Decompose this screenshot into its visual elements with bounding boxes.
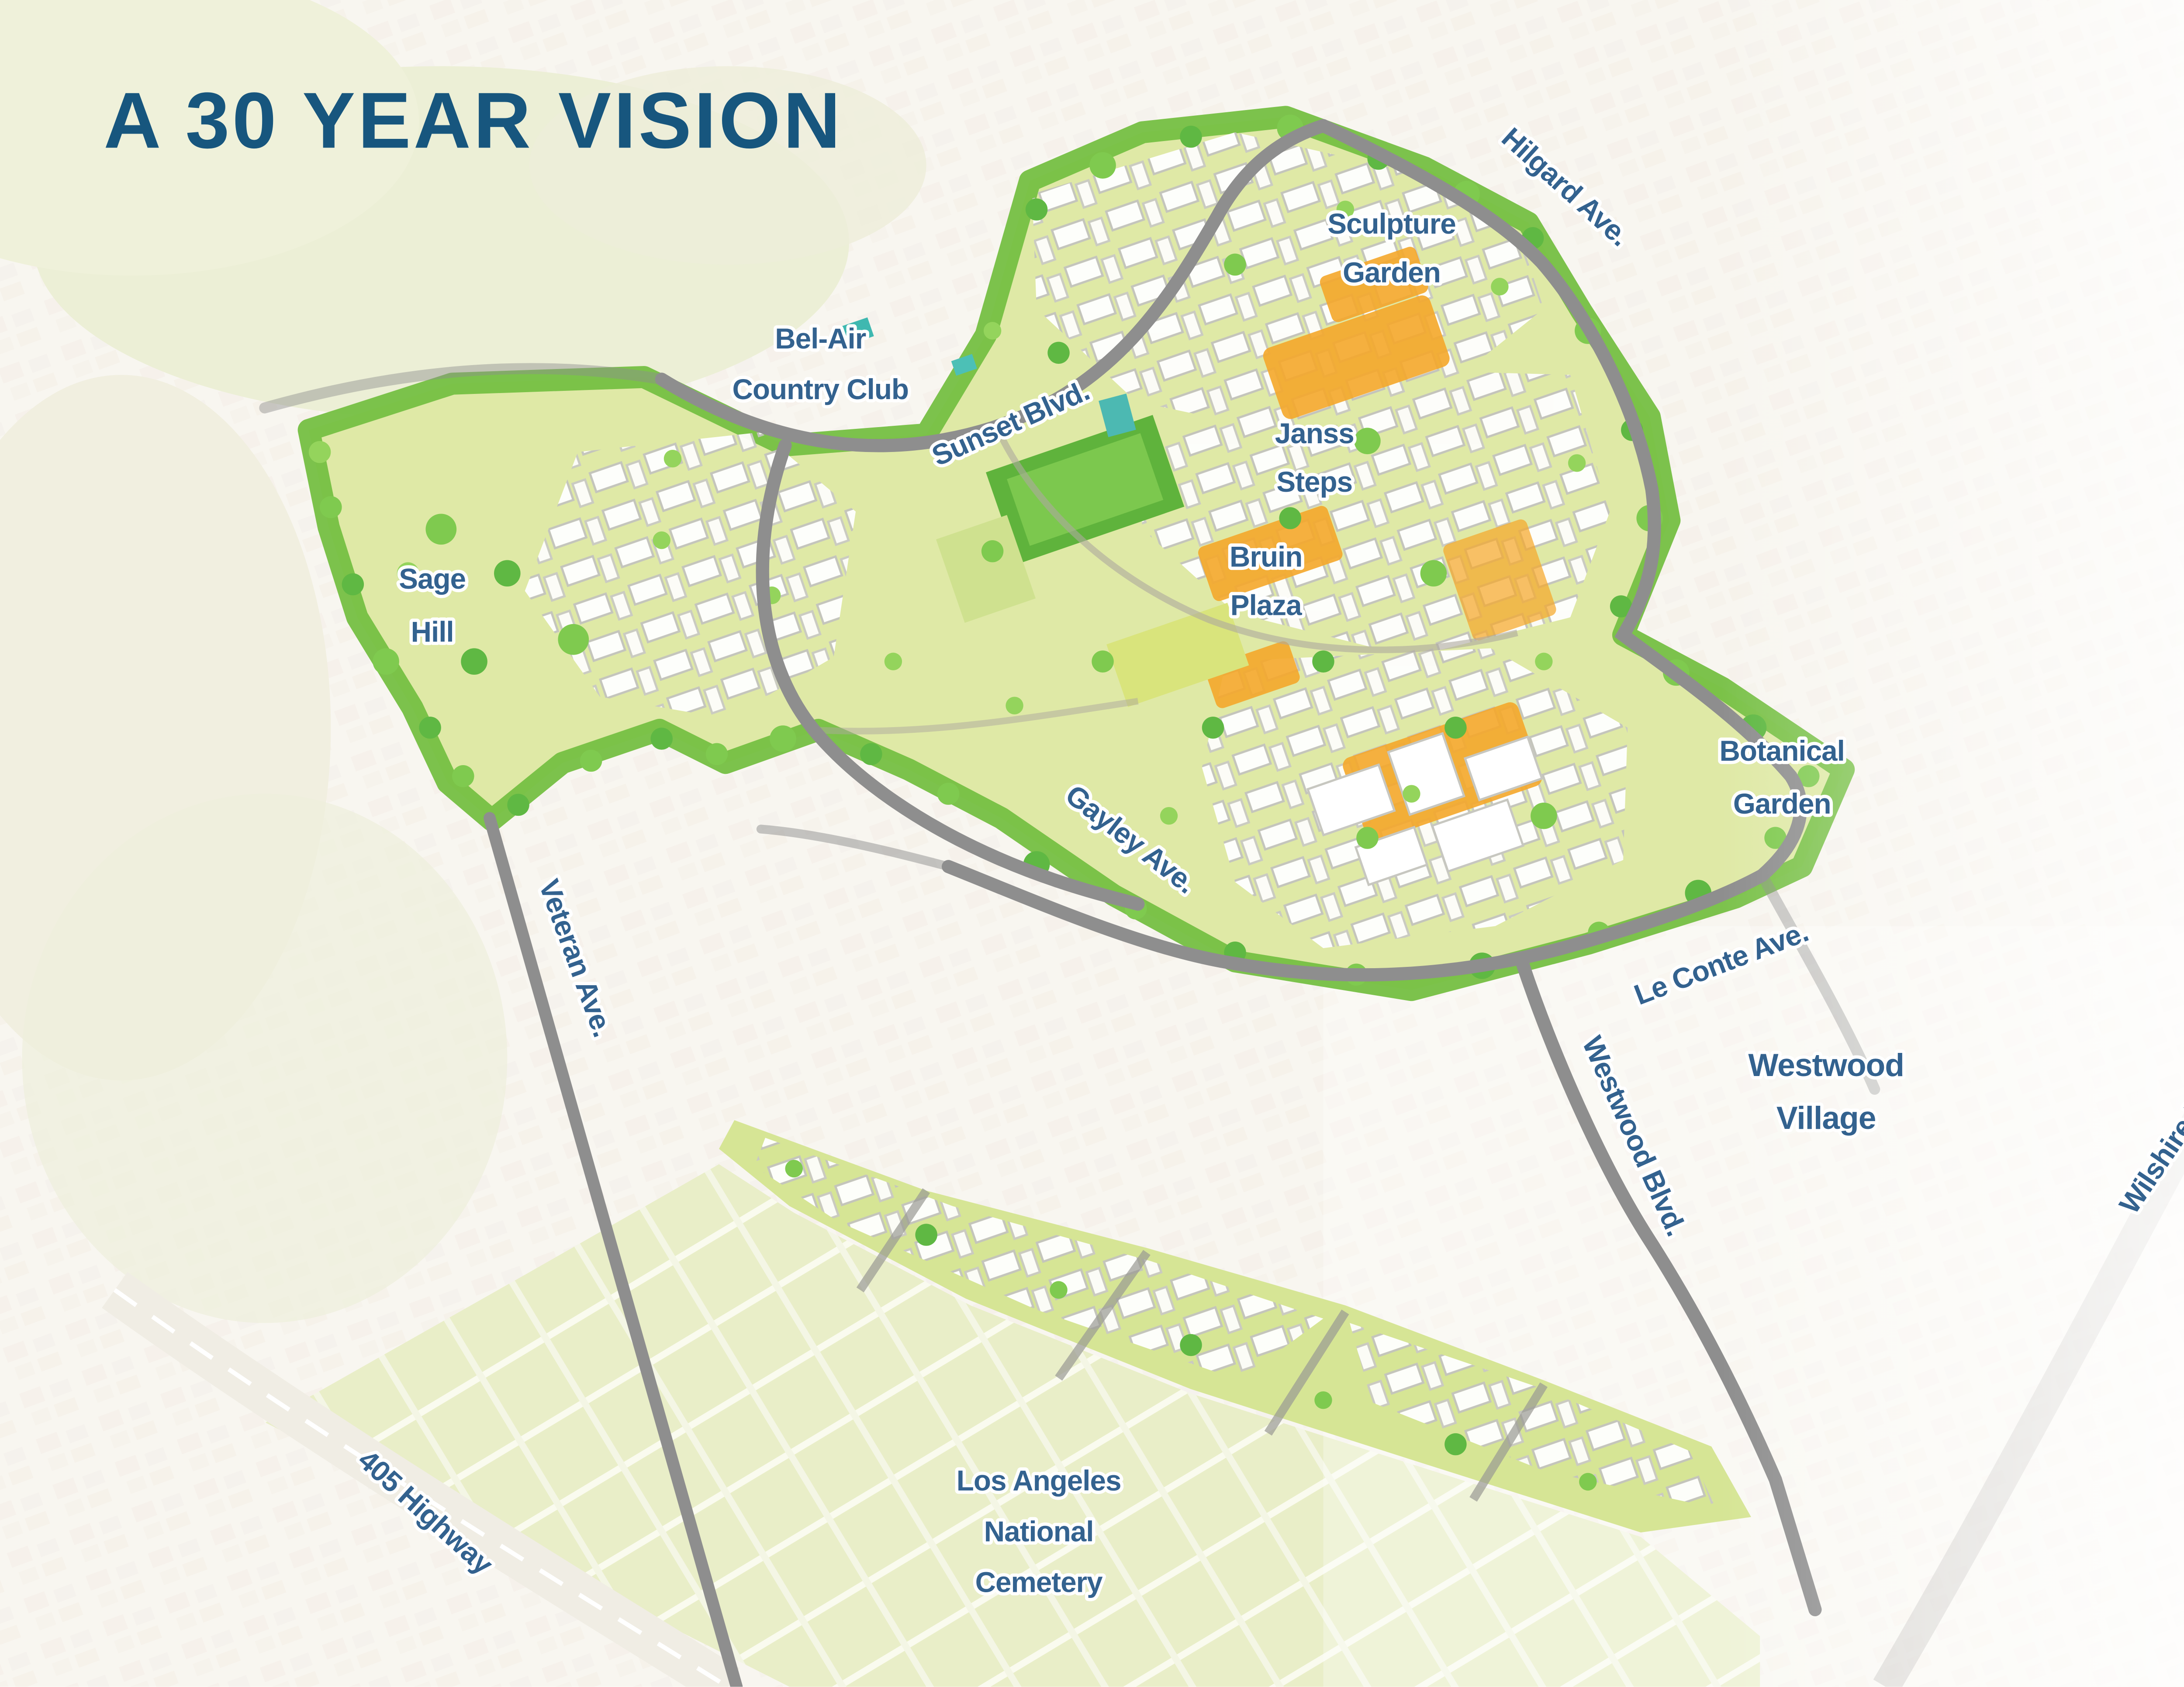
infographic: SculptureGarden Hilgard Ave. Bel-AirCoun… — [0, 0, 2184, 1687]
campus-map: SculptureGarden Hilgard Ave. Bel-AirCoun… — [0, 0, 2184, 1687]
infographic-canvas: SculptureGarden Hilgard Ave. Bel-AirCoun… — [0, 0, 2184, 1687]
fade-overlay — [1720, 0, 2184, 1687]
page-title: A 30 YEAR VISION — [104, 75, 843, 168]
